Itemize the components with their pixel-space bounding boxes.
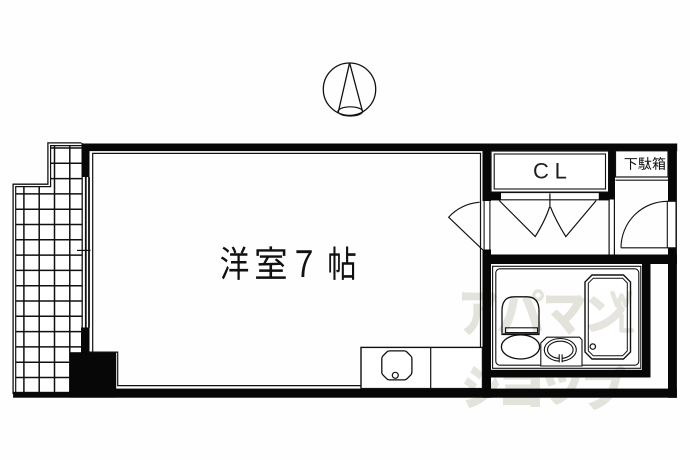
svg-text:C: C (533, 158, 549, 183)
svg-text:L: L (555, 158, 567, 183)
